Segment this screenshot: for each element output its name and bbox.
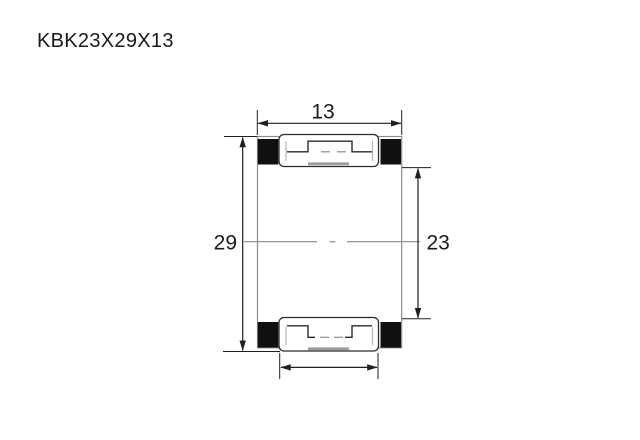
cage-rim-section-bottom-right	[381, 322, 402, 348]
bearing-cross-section-drawing: 13 29 23	[0, 0, 640, 440]
dim-bore-label: 23	[427, 232, 450, 255]
cage-rim-section-top-left	[258, 139, 279, 165]
dim-cage-width-unlabeled	[280, 353, 378, 379]
dim-bore-diameter: 23	[402, 168, 450, 319]
dim-outer-diameter: 29	[214, 137, 280, 352]
dim-bore-arrow-bottom	[415, 308, 421, 319]
dim-width-label: 13	[311, 101, 334, 124]
roller-bottom-outline	[279, 318, 379, 352]
dim-od-arrow-top	[240, 137, 246, 148]
dim-cage-arrow-left	[280, 364, 291, 370]
dim-od-label: 29	[214, 232, 237, 255]
roller-top-outline	[279, 135, 379, 167]
dim-cage-arrow-right	[367, 364, 378, 370]
dim-od-arrow-bottom	[240, 341, 246, 352]
dim-width-arrow-left	[258, 120, 269, 126]
needle-roller-bottom	[279, 318, 379, 352]
cage-rim-section-top-right	[381, 139, 402, 165]
dim-bore-arrow-top	[415, 168, 421, 179]
dim-width-arrow-right	[391, 120, 402, 126]
cage-rim-section-bottom-left	[258, 322, 279, 348]
needle-roller-top	[279, 135, 379, 167]
dim-width: 13	[257, 101, 401, 136]
